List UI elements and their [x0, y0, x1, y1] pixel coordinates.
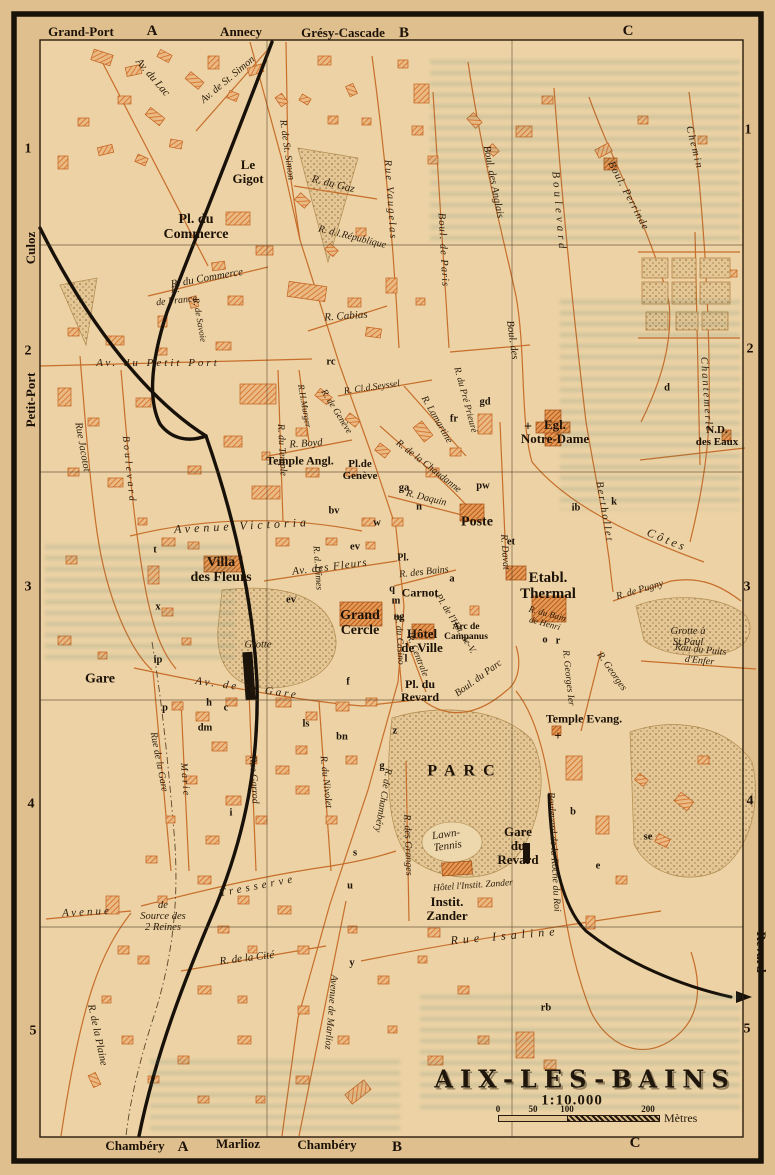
scale-bar-rule — [498, 1115, 660, 1122]
scale-tick: 0 — [496, 1104, 501, 1114]
scale-bar: Mètres 050100200 — [498, 1104, 718, 1126]
scale-unit-label: Mètres — [664, 1111, 697, 1126]
scale-bar-segment-hatched — [568, 1116, 659, 1121]
scale-tick: 200 — [641, 1104, 655, 1114]
scale-bar-segment — [499, 1116, 568, 1121]
map-container: Grand-PortAAnnecyGrésy-CascadeBCChambéry… — [0, 0, 775, 1175]
map-title: AIX-LES-BAINS — [434, 1065, 735, 1094]
scale-tick: 100 — [560, 1104, 574, 1114]
scale-tick: 50 — [529, 1104, 538, 1114]
